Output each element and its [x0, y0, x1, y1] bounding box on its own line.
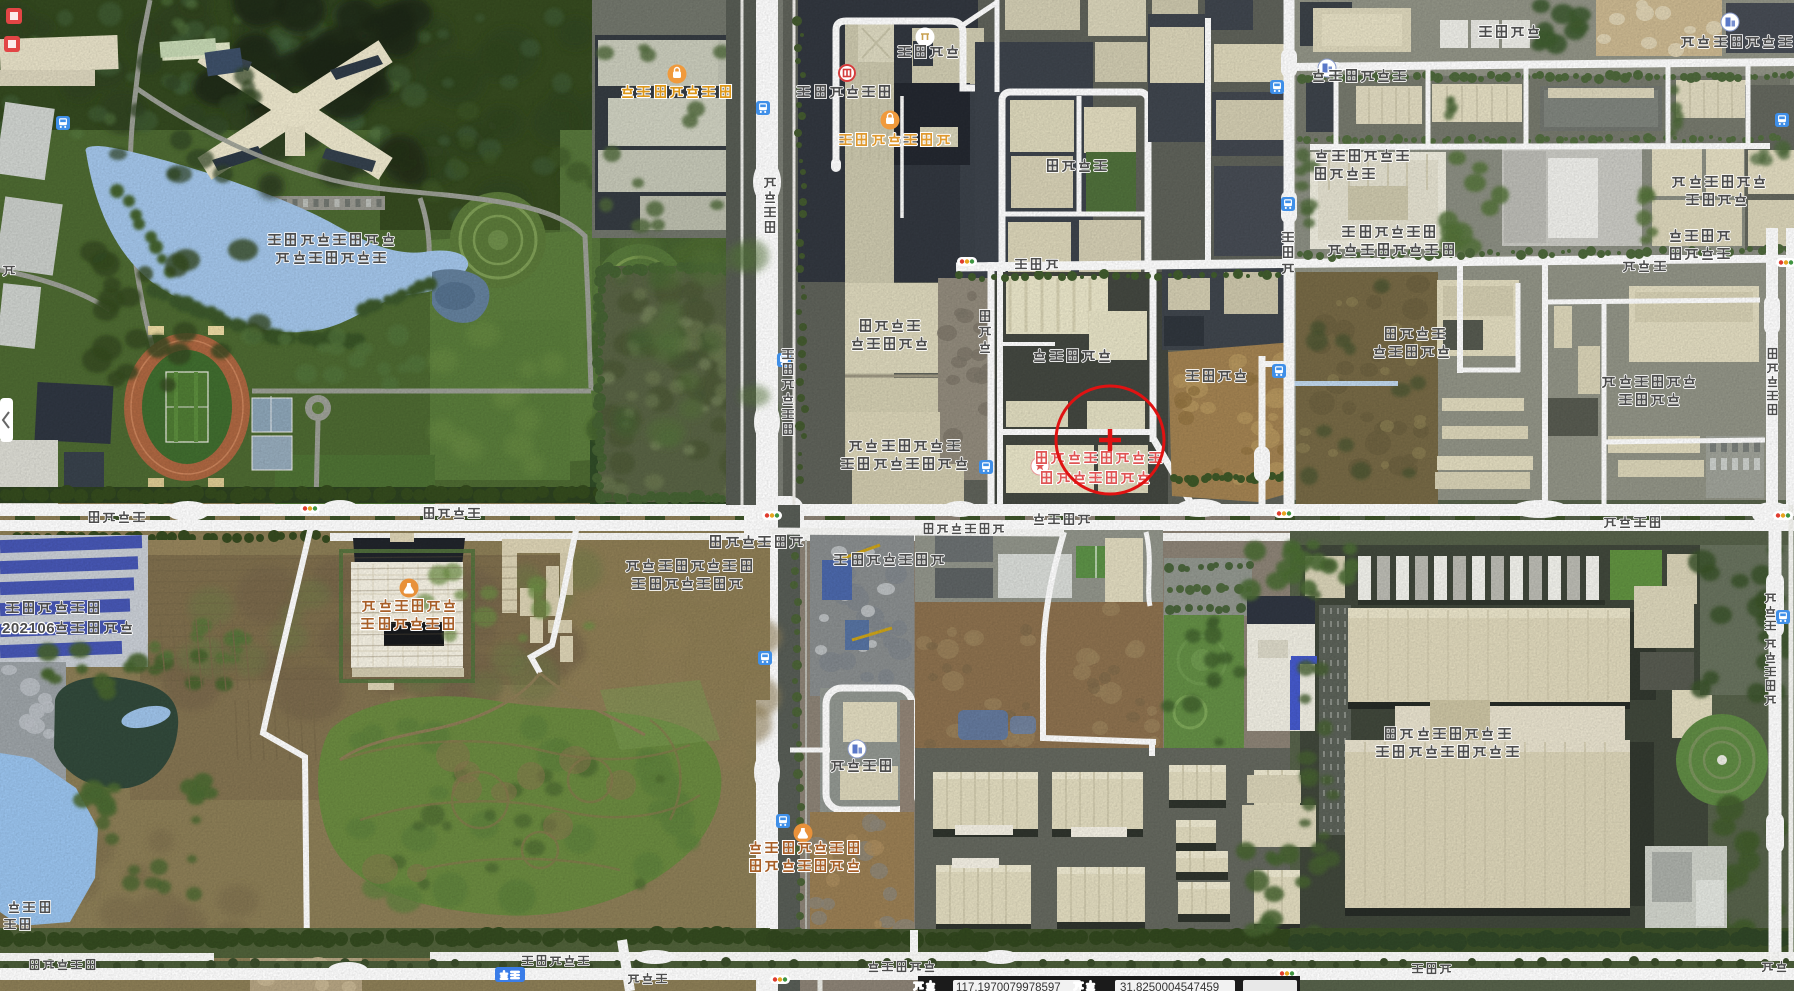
svg-text:117.1970079978597: 117.1970079978597: [956, 982, 1061, 991]
svg-text:202106: 202106: [2, 620, 55, 637]
svg-text:31.8250004547459: 31.8250004547459: [1120, 982, 1219, 991]
